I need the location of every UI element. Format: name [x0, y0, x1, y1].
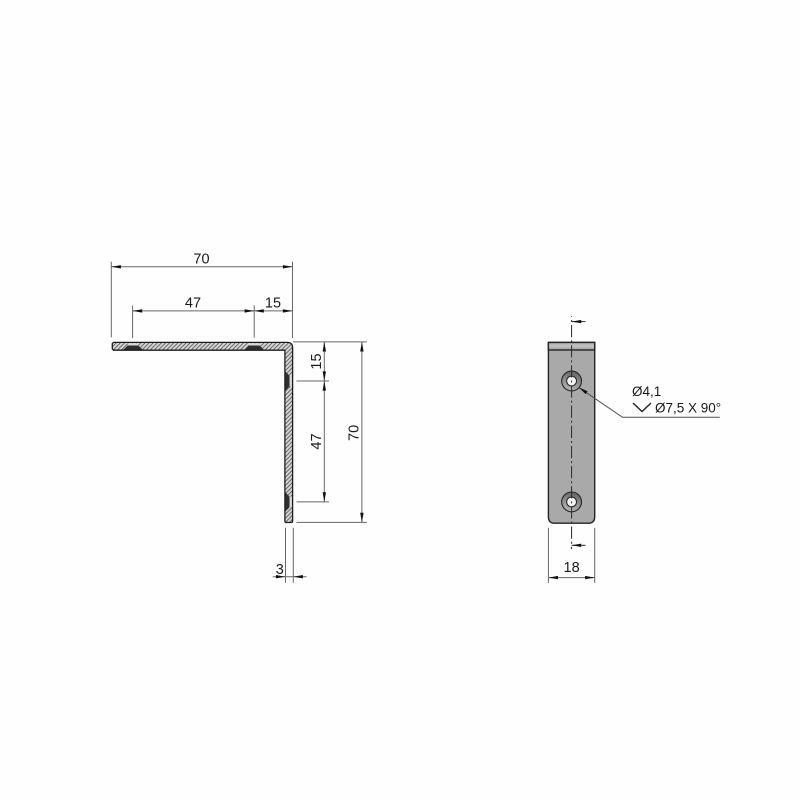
svg-text:Ø4,1: Ø4,1: [632, 384, 661, 399]
svg-text:15: 15: [265, 295, 281, 311]
svg-text:3: 3: [276, 562, 284, 578]
svg-text:70: 70: [193, 252, 209, 268]
svg-text:70: 70: [346, 425, 362, 441]
svg-text:47: 47: [309, 433, 325, 449]
svg-text:Ø7,5 X 90°: Ø7,5 X 90°: [655, 401, 721, 416]
svg-text:47: 47: [185, 295, 201, 311]
svg-text:18: 18: [564, 560, 580, 576]
svg-text:15: 15: [309, 353, 325, 369]
